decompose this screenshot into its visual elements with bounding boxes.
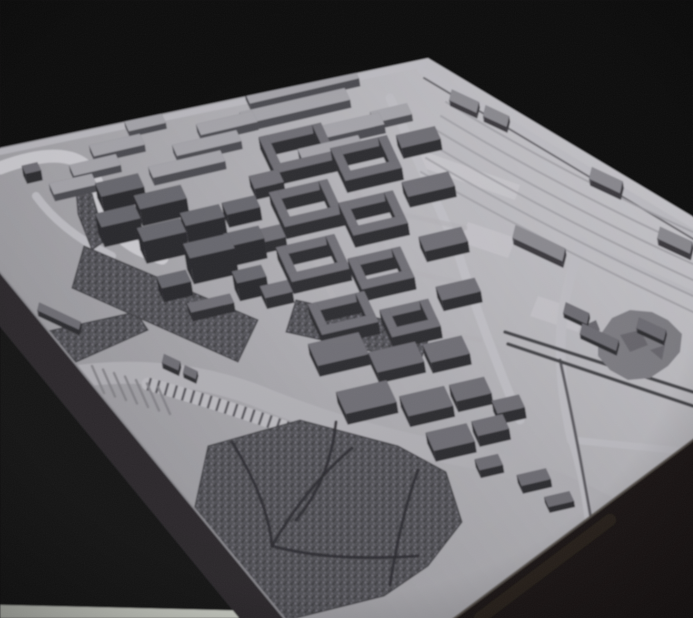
photo-of-architectural-model: Photograph of a monochrome architectural… xyxy=(0,0,693,618)
photo-grain xyxy=(0,0,693,618)
model-photo-canvas: Photograph of a monochrome architectural… xyxy=(0,0,693,618)
